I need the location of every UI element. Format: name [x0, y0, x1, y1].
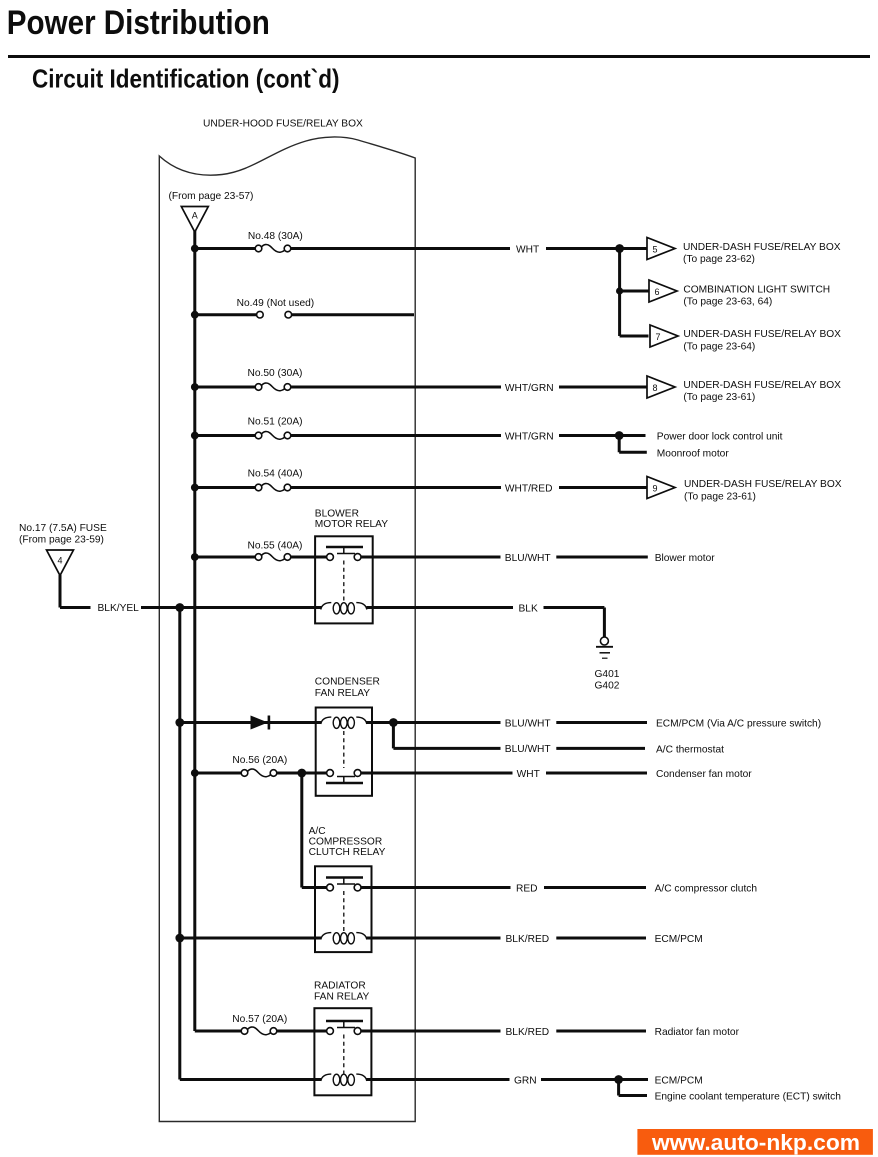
svg-text:FAN RELAY: FAN RELAY	[314, 992, 369, 1003]
svg-text:BLK: BLK	[519, 603, 538, 614]
svg-text:www.auto-nkp.com: www.auto-nkp.com	[651, 1130, 860, 1155]
svg-text:A/C compressor clutch: A/C compressor clutch	[655, 884, 757, 895]
svg-text:ECM/PCM: ECM/PCM	[655, 1076, 703, 1087]
svg-text:BLK/RED: BLK/RED	[506, 934, 550, 945]
svg-text:Circuit Identification (cont`d: Circuit Identification (cont`d)	[32, 66, 340, 94]
svg-text:No.51 (20A): No.51 (20A)	[248, 417, 303, 428]
svg-text:BLU/WHT: BLU/WHT	[505, 718, 551, 729]
svg-text:UNDER-DASH FUSE/RELAY BOX: UNDER-DASH FUSE/RELAY BOX	[683, 242, 841, 253]
svg-text:UNDER-DASH FUSE/RELAY BOX: UNDER-DASH FUSE/RELAY BOX	[683, 380, 841, 391]
svg-text:MOTOR RELAY: MOTOR RELAY	[315, 519, 388, 530]
svg-text:CONDENSER: CONDENSER	[315, 677, 380, 688]
svg-text:WHT: WHT	[517, 769, 540, 780]
svg-text:UNDER-HOOD FUSE/RELAY BOX: UNDER-HOOD FUSE/RELAY BOX	[203, 119, 363, 130]
svg-text:No.57 (20A): No.57 (20A)	[232, 1014, 287, 1025]
svg-text:FAN RELAY: FAN RELAY	[315, 688, 370, 699]
svg-text:No.17 (7.5A) FUSE: No.17 (7.5A) FUSE	[19, 523, 107, 534]
svg-text:G402: G402	[595, 681, 620, 692]
svg-text:CLUTCH RELAY: CLUTCH RELAY	[309, 847, 386, 858]
svg-text:(To page 23-63, 64): (To page 23-63, 64)	[683, 297, 772, 308]
svg-text:Blower motor: Blower motor	[655, 553, 716, 564]
svg-text:BLU/WHT: BLU/WHT	[505, 553, 551, 564]
svg-text:Radiator fan motor: Radiator fan motor	[655, 1027, 740, 1038]
svg-text:UNDER-DASH FUSE/RELAY BOX: UNDER-DASH FUSE/RELAY BOX	[684, 479, 842, 490]
svg-text:A: A	[192, 211, 198, 221]
svg-text:ECM/PCM (Via A/C pressure swit: ECM/PCM (Via A/C pressure switch)	[656, 719, 821, 730]
svg-text:No.55 (40A): No.55 (40A)	[248, 541, 303, 552]
svg-text:No.48 (30A): No.48 (30A)	[248, 231, 303, 242]
svg-text:4: 4	[57, 556, 62, 566]
svg-text:BLU/WHT: BLU/WHT	[505, 744, 551, 755]
svg-text:WHT/GRN: WHT/GRN	[505, 431, 554, 442]
svg-text:ECM/PCM: ECM/PCM	[655, 934, 703, 945]
svg-text:6: 6	[655, 287, 660, 297]
svg-text:(To page 23-61): (To page 23-61)	[684, 492, 756, 503]
svg-text:Moonroof motor: Moonroof motor	[657, 449, 730, 460]
svg-text:(From page 23-57): (From page 23-57)	[169, 191, 254, 202]
svg-text:BLK/RED: BLK/RED	[506, 1027, 550, 1038]
svg-text:No.49 (Not used): No.49 (Not used)	[237, 298, 315, 309]
svg-text:COMPRESSOR: COMPRESSOR	[309, 836, 383, 847]
svg-text:GRN: GRN	[514, 1075, 537, 1086]
svg-text:No.50 (30A): No.50 (30A)	[248, 368, 303, 379]
svg-text:A/C: A/C	[309, 826, 326, 837]
svg-text:G401: G401	[595, 669, 620, 680]
svg-text:Condenser fan motor: Condenser fan motor	[656, 769, 752, 780]
svg-text:Power door lock control unit: Power door lock control unit	[657, 432, 783, 443]
svg-text:(To page 23-62): (To page 23-62)	[683, 254, 755, 265]
svg-text:Power Distribution: Power Distribution	[7, 4, 270, 42]
svg-text:9: 9	[653, 483, 658, 493]
svg-text:(To page 23-64): (To page 23-64)	[683, 342, 755, 353]
svg-text:(To page 23-61): (To page 23-61)	[683, 392, 755, 403]
svg-text:(From page 23-59): (From page 23-59)	[19, 535, 104, 546]
svg-text:WHT/GRN: WHT/GRN	[505, 383, 554, 394]
svg-text:BLK/YEL: BLK/YEL	[98, 603, 140, 614]
svg-text:A/C thermostat: A/C thermostat	[656, 745, 724, 756]
svg-text:WHT/RED: WHT/RED	[505, 483, 553, 494]
svg-text:UNDER-DASH FUSE/RELAY BOX: UNDER-DASH FUSE/RELAY BOX	[683, 329, 841, 340]
svg-text:No.54 (40A): No.54 (40A)	[248, 469, 303, 480]
svg-text:RADIATOR: RADIATOR	[314, 981, 366, 992]
svg-text:5: 5	[653, 244, 658, 254]
svg-text:WHT: WHT	[516, 245, 539, 256]
svg-text:RED: RED	[516, 883, 538, 894]
svg-text:COMBINATION LIGHT SWITCH: COMBINATION LIGHT SWITCH	[683, 284, 830, 295]
svg-text:7: 7	[656, 332, 661, 342]
svg-text:Engine coolant temperature (EC: Engine coolant temperature (ECT) switch	[655, 1092, 841, 1103]
svg-text:No.56 (20A): No.56 (20A)	[232, 755, 287, 766]
svg-text:8: 8	[653, 383, 658, 393]
